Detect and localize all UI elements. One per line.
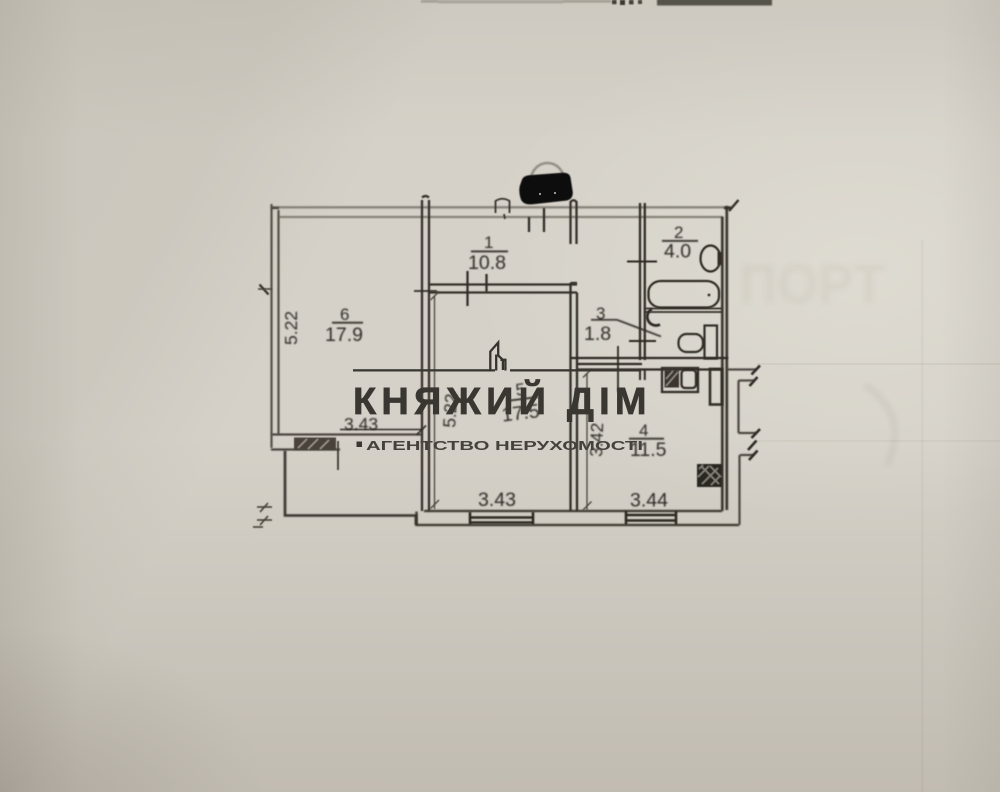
svg-text:11.5: 11.5	[630, 439, 667, 461]
svg-text:1: 1	[484, 233, 493, 252]
svg-text:4: 4	[639, 421, 648, 440]
svg-text:17.5: 17.5	[500, 400, 541, 426]
svg-text:1.8: 1.8	[584, 323, 611, 345]
svg-text:3.43: 3.43	[344, 414, 378, 434]
svg-text:5: 5	[515, 380, 527, 400]
svg-text:КНЯЖИЙ ДІМ: КНЯЖИЙ ДІМ	[353, 378, 652, 423]
svg-text:ПОРТ: ПОРТ	[739, 252, 885, 315]
svg-text:6: 6	[340, 305, 349, 324]
svg-text:3.44: 3.44	[630, 490, 668, 512]
svg-text:5.22: 5.22	[281, 311, 301, 345]
svg-text:17.9: 17.9	[325, 324, 363, 346]
svg-text:4.0: 4.0	[664, 241, 691, 263]
svg-text:5.22: 5.22	[439, 393, 461, 428]
svg-text:3.43: 3.43	[478, 489, 516, 511]
svg-text:3: 3	[596, 304, 605, 323]
svg-text:АГЕНТСТВО НЕРУХОМОСТІ: АГЕНТСТВО НЕРУХОМОСТІ	[366, 438, 643, 453]
svg-text:3.42: 3.42	[586, 422, 607, 457]
svg-text:2: 2	[674, 223, 683, 242]
svg-text:10.8: 10.8	[468, 252, 506, 274]
